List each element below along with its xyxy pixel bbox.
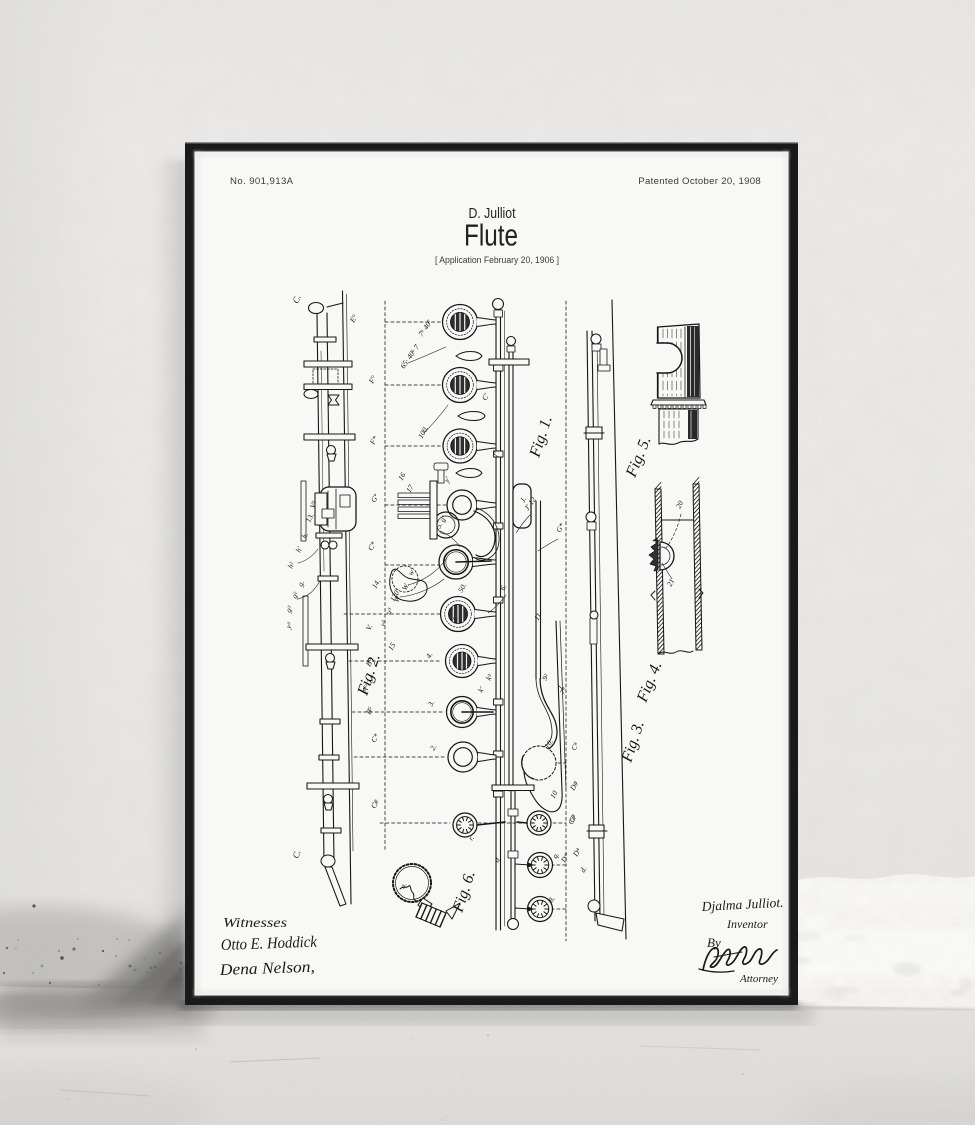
svg-text:Inventor: Inventor xyxy=(726,917,768,931)
svg-text:Patented October 20, 1908: Patented October 20, 1908 xyxy=(638,176,761,187)
svg-text:[ Application February 20, 19: [ Application February 20, 1906 ] xyxy=(435,255,559,265)
svg-text:Attorney: Attorney xyxy=(739,973,778,985)
svg-text:Dena Nelson,: Dena Nelson, xyxy=(218,959,315,979)
svg-text:No. 901,913A: No. 901,913A xyxy=(230,176,294,187)
svg-text:Flute: Flute xyxy=(464,218,518,253)
svg-text:Otto E. Hoddick: Otto E. Hoddick xyxy=(221,934,318,954)
svg-text:Witnesses: Witnesses xyxy=(223,915,287,930)
